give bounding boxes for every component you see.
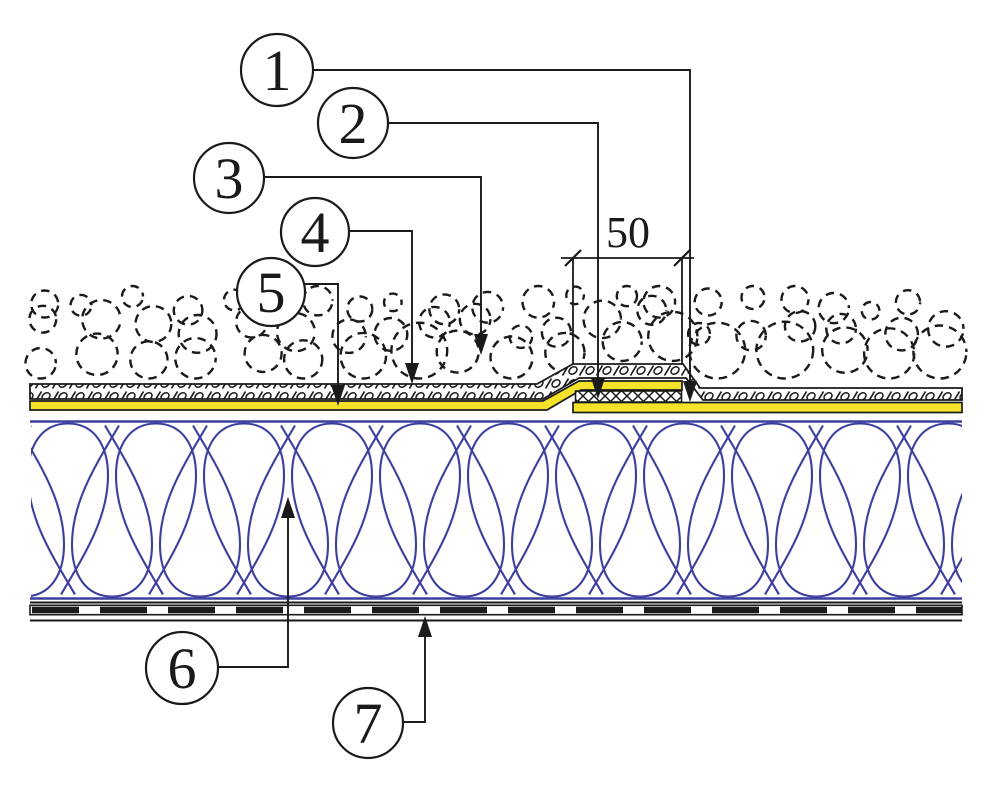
callout-number: 4	[301, 200, 330, 265]
seam-weld-crosshatch	[576, 391, 682, 402]
callout-number: 1	[263, 38, 292, 103]
insulation-layer	[30, 422, 962, 599]
roof-detail-page: 50 1 2 3 4 5 6	[0, 0, 1000, 795]
roof-construction-detail-diagram: 50 1 2 3 4 5 6	[0, 0, 1000, 795]
callout-number: 7	[354, 691, 383, 756]
callout-number: 2	[339, 91, 368, 156]
callout-number: 6	[168, 636, 197, 701]
lower-membrane-sheet	[573, 403, 962, 413]
callout-number: 5	[257, 260, 286, 325]
dimension-label: 50	[606, 208, 650, 257]
callout-number: 3	[215, 146, 244, 211]
insulation-hatch	[31, 422, 962, 598]
